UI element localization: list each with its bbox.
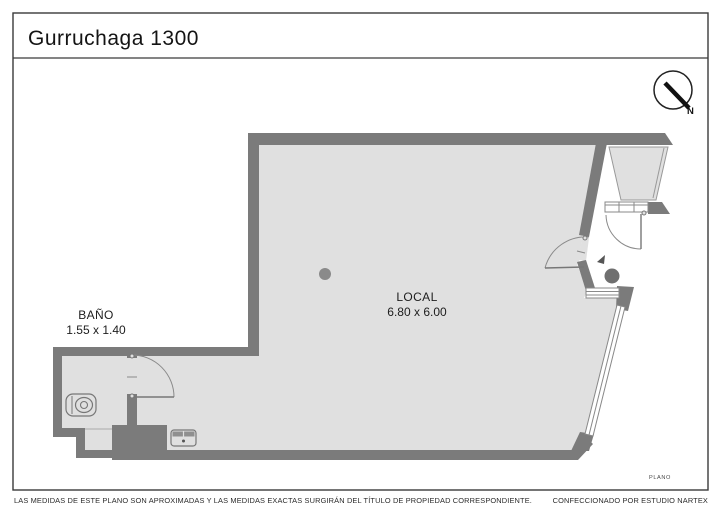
alcove-floor <box>85 428 112 450</box>
wall-bathroom-door-stub-bottom <box>127 394 137 426</box>
local-floor <box>259 144 622 450</box>
local-dimensions: 6.80 x 6.00 <box>387 305 447 319</box>
sheet-type-label: PLANO <box>649 475 671 481</box>
vestibule-door <box>606 211 646 249</box>
local-door-hinge <box>583 236 587 240</box>
compass-north-label: N <box>687 106 694 117</box>
bathroom-dimensions: 1.55 x 1.40 <box>66 323 126 337</box>
bathroom-door-hinge-top <box>130 354 134 358</box>
floor-plan-drawing: Gurruchaga 1300 N <box>0 0 720 509</box>
toilet-icon <box>66 394 96 416</box>
sink-icon <box>171 430 196 446</box>
floor-plan-page: Gurruchaga 1300 N <box>0 0 720 509</box>
wall-top <box>248 133 673 145</box>
north-compass-icon: N <box>654 71 694 117</box>
wall-alcove-right-block <box>112 425 167 451</box>
entrance-step <box>586 288 619 298</box>
column-entrance <box>605 269 620 284</box>
vestibule-door-arc <box>606 215 641 249</box>
sink-drain-dot <box>182 440 185 443</box>
local-label: LOCAL <box>396 290 437 304</box>
door-frame-outline <box>605 202 648 212</box>
entrance-arrow-marker <box>597 255 605 264</box>
bathroom-door-hinge-bottom <box>130 394 134 398</box>
wall-left <box>248 133 259 355</box>
local-door-leaf <box>545 267 584 268</box>
wall-bathroom-top <box>53 347 259 356</box>
column-local <box>319 268 331 280</box>
footer-disclaimer: LAS MEDIDAS DE ESTE PLANO SON APROXIMADA… <box>14 496 532 505</box>
wall-bathroom-left <box>53 347 62 437</box>
bathroom-door-opening <box>127 358 137 394</box>
entrance-door-frame <box>605 202 648 212</box>
bathroom-label: BAÑO <box>78 308 114 322</box>
vestibule-floor <box>609 147 668 200</box>
footer-credit: CONFECCIONADO POR ESTUDIO NARTEX <box>553 496 708 505</box>
wall-vestibule-right-stub <box>648 202 670 214</box>
bathroom-floor <box>62 356 127 428</box>
floor-areas <box>62 144 668 450</box>
footer: LAS MEDIDAS DE ESTE PLANO SON APROXIMADA… <box>14 496 708 505</box>
page-title: Gurruchaga 1300 <box>28 27 199 50</box>
step-outline <box>586 288 619 298</box>
vestibule-door-hinge <box>642 211 646 215</box>
